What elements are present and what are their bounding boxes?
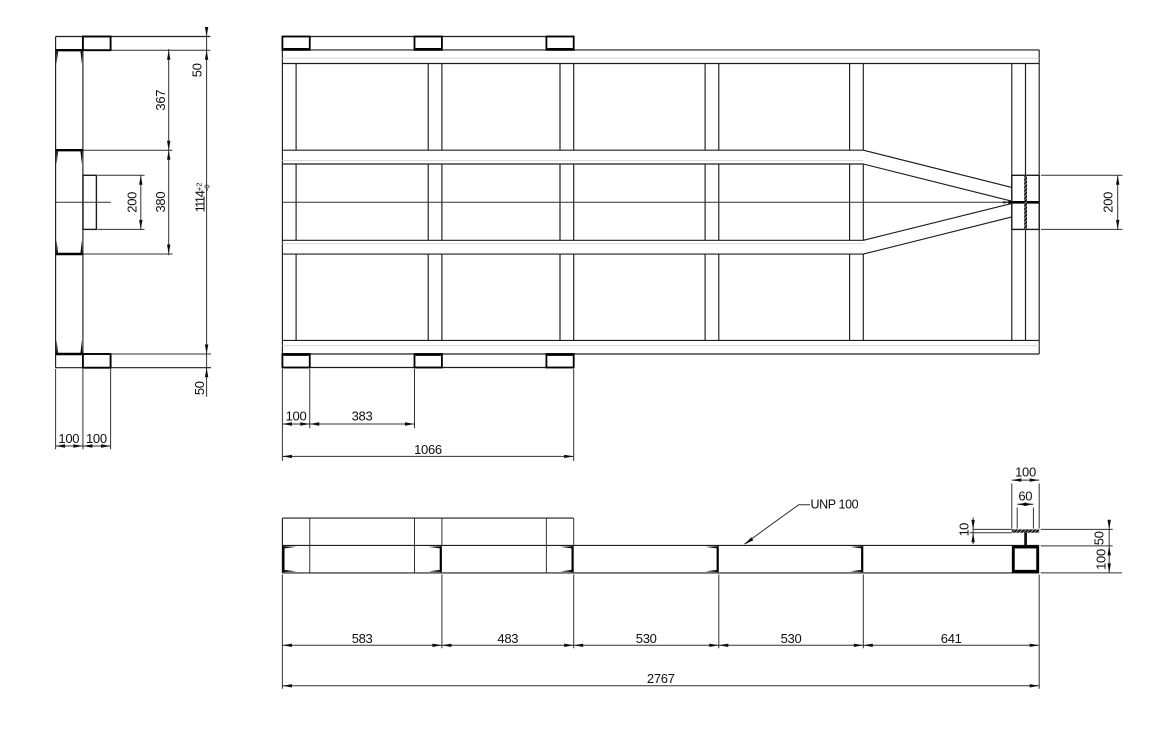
svg-text:1114: 1114 [193, 190, 208, 212]
svg-text:641: 641 [941, 631, 962, 646]
svg-text:50: 50 [1092, 531, 1107, 545]
svg-text:100: 100 [86, 431, 107, 446]
svg-text:383: 383 [352, 409, 373, 424]
svg-text:200: 200 [124, 192, 139, 213]
svg-text:2767: 2767 [647, 671, 675, 686]
svg-text:530: 530 [781, 631, 802, 646]
svg-text:380: 380 [153, 192, 168, 213]
svg-text:200: 200 [1101, 192, 1116, 213]
svg-text:583: 583 [352, 631, 373, 646]
svg-text:530: 530 [636, 631, 657, 646]
svg-text:60: 60 [1018, 489, 1032, 504]
svg-text:100: 100 [1094, 549, 1109, 570]
svg-text:100: 100 [286, 409, 307, 424]
svg-text:10: 10 [956, 523, 971, 536]
svg-text:367: 367 [153, 90, 168, 111]
svg-text:100: 100 [58, 431, 79, 446]
svg-text:50: 50 [190, 63, 205, 77]
svg-text:483: 483 [497, 631, 518, 646]
svg-text:100: 100 [1015, 465, 1036, 480]
svg-text:50: 50 [192, 381, 207, 395]
svg-text:UNP 100: UNP 100 [811, 498, 859, 512]
svg-text:-0: -0 [202, 184, 211, 191]
svg-text:1066: 1066 [414, 442, 442, 457]
